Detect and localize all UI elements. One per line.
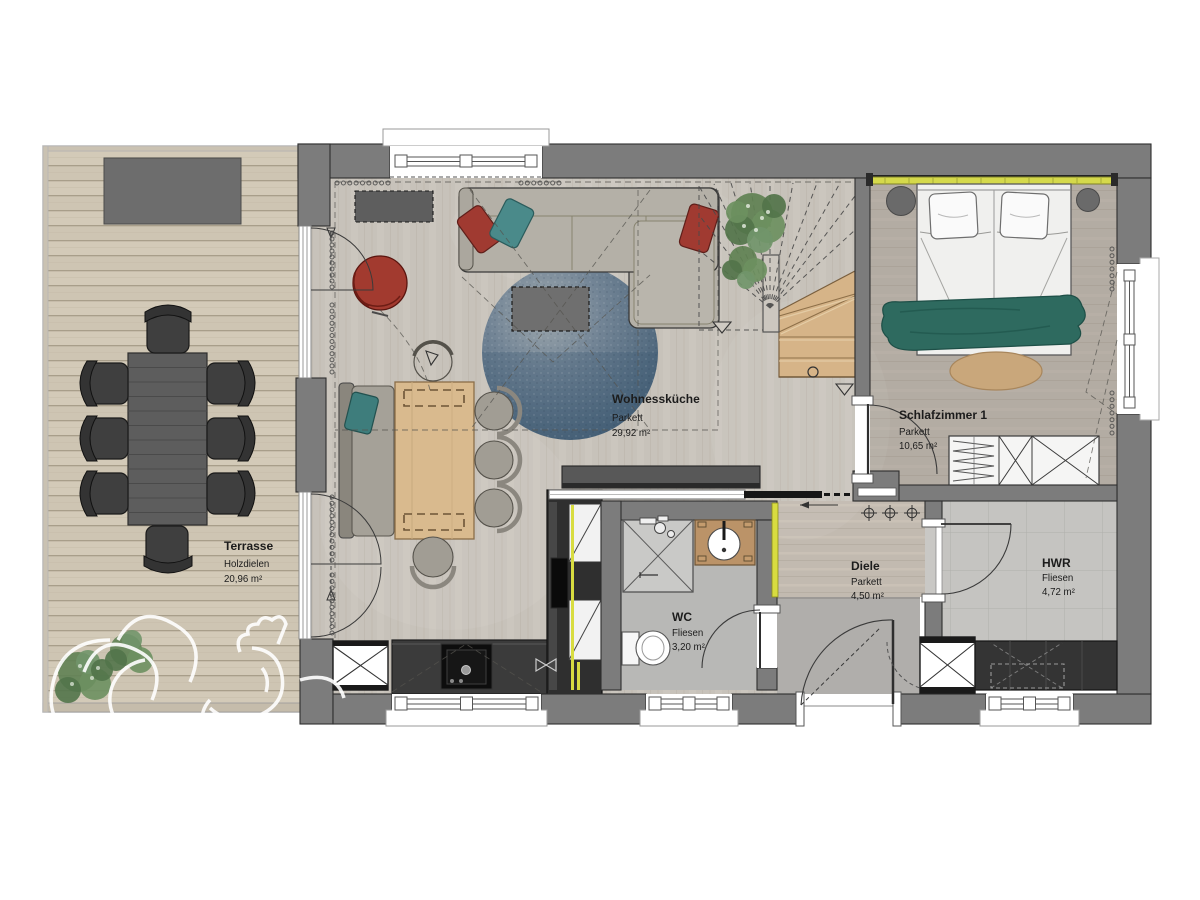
svg-text:Fliesen: Fliesen — [1042, 573, 1073, 584]
svg-text:Parkett: Parkett — [899, 427, 930, 438]
svg-text:4,72 m²: 4,72 m² — [1042, 587, 1076, 598]
svg-text:Fliesen: Fliesen — [672, 628, 703, 639]
svg-text:Schlafzimmer 1: Schlafzimmer 1 — [899, 408, 987, 422]
svg-text:3,20 m²: 3,20 m² — [672, 642, 706, 653]
svg-text:29,92 m²: 29,92 m² — [612, 428, 651, 439]
svg-text:Holzdielen: Holzdielen — [224, 559, 269, 570]
svg-text:Parkett: Parkett — [612, 413, 643, 424]
svg-text:4,50 m²: 4,50 m² — [851, 591, 885, 602]
svg-text:20,96 m²: 20,96 m² — [224, 574, 263, 585]
svg-text:Diele: Diele — [851, 559, 880, 573]
svg-text:Wohnessküche: Wohnessküche — [612, 392, 700, 406]
svg-text:Terrasse: Terrasse — [224, 539, 273, 553]
svg-text:HWR: HWR — [1042, 556, 1071, 570]
svg-text:10,65 m²: 10,65 m² — [899, 441, 938, 452]
svg-text:WC: WC — [672, 610, 692, 624]
svg-text:Parkett: Parkett — [851, 577, 882, 588]
